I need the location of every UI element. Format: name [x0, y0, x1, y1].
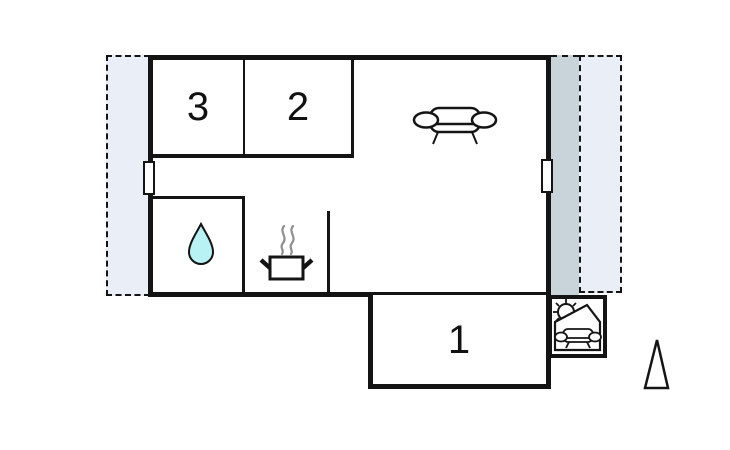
interior-wall-room2-right: [351, 60, 354, 158]
steam-lines: [282, 226, 294, 254]
window-icon: [143, 161, 155, 195]
room-3-label: 3: [187, 87, 209, 127]
water-drop-icon: [184, 222, 218, 268]
room-2-label: 2: [287, 87, 309, 127]
terrace-right: [579, 55, 622, 293]
interior-wall-room3-room2: [243, 60, 245, 154]
floor-plan: 3 2 1: [0, 0, 730, 450]
interior-wall-kitchen: [327, 211, 330, 292]
interior-wall-bath-top: [153, 196, 245, 199]
exterior-wall-bottom: [148, 292, 373, 297]
covered-seating-box: [548, 295, 607, 358]
cooking-pot-icon: [250, 218, 320, 284]
room-1-label: 1: [448, 320, 470, 360]
window-icon: [541, 159, 553, 193]
north-arrow-icon: [638, 336, 678, 394]
terrace-right-shaded-strip: [551, 55, 579, 295]
interior-wall-bedrooms-bottom: [153, 154, 354, 158]
sofa-icon: [407, 99, 503, 151]
interior-wall-bath-right: [242, 196, 245, 292]
covered-seating-icon: [552, 299, 603, 354]
